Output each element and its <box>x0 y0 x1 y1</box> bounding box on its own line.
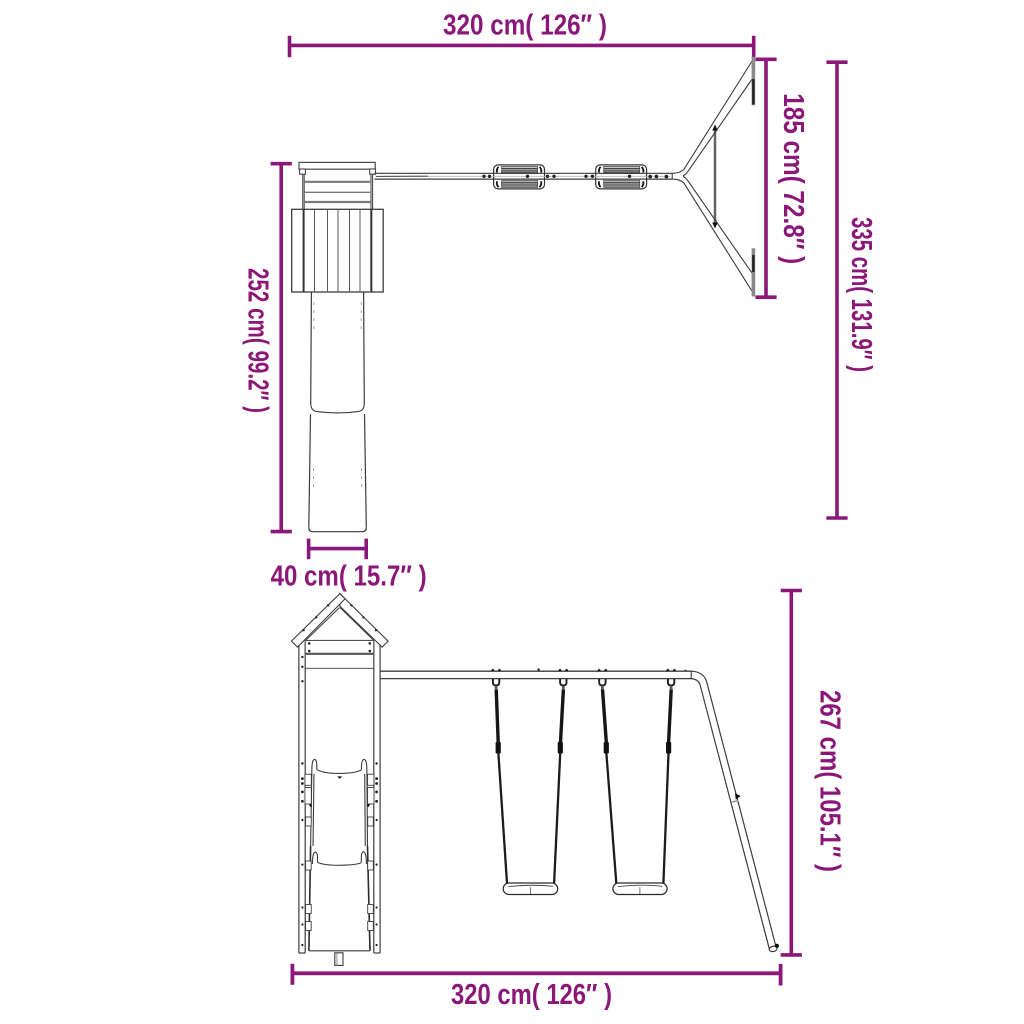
svg-text:267 cm( 105.1″ ): 267 cm( 105.1″ ) <box>814 690 846 872</box>
svg-text:40 cm( 15.7″ ): 40 cm( 15.7″ ) <box>271 560 427 592</box>
svg-text:252 cm( 99.2″ ): 252 cm( 99.2″ ) <box>242 268 274 413</box>
svg-text:185 cm( 72.8″ ): 185 cm( 72.8″ ) <box>777 93 809 264</box>
svg-text:320 cm( 126″ ): 320 cm( 126″ ) <box>443 9 607 41</box>
svg-text:335 cm( 131.9″ ): 335 cm( 131.9″ ) <box>845 217 877 372</box>
svg-text:320 cm( 126″ ): 320 cm( 126″ ) <box>451 979 612 1011</box>
